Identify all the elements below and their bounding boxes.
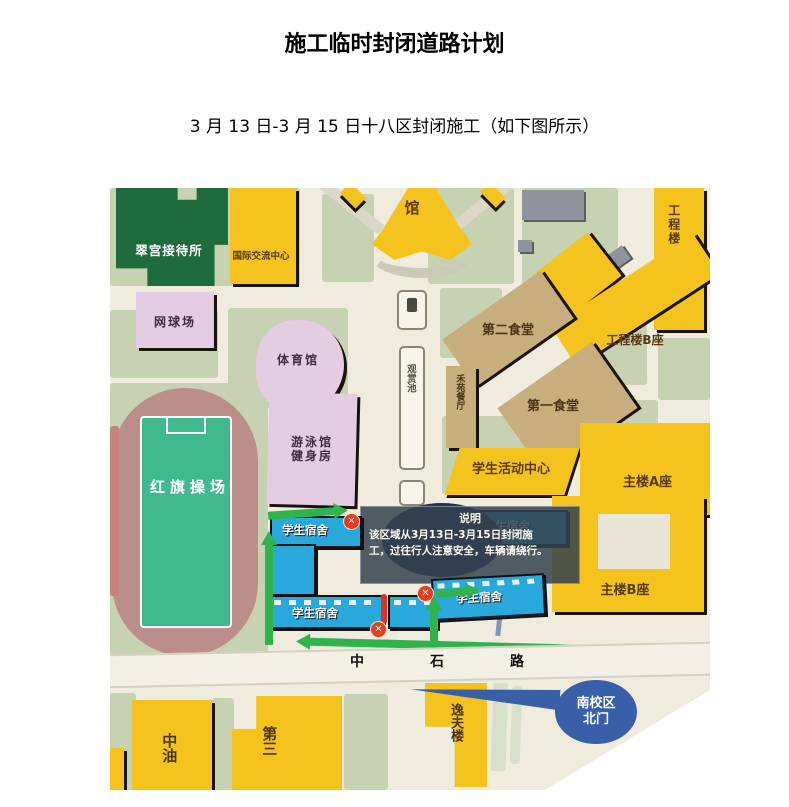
arrow-shaft xyxy=(430,610,438,646)
label-red-flag-playground: 红旗操场 xyxy=(130,479,250,496)
arrow-head xyxy=(261,531,277,545)
label-main-b: 主楼B座 xyxy=(565,584,685,599)
label-pool-gym: 游泳馆 健身房 xyxy=(268,436,356,464)
label-second-canteen: 第二食堂 xyxy=(453,324,563,339)
detour-arrow-up xyxy=(260,531,278,645)
soccer-field xyxy=(140,416,232,628)
label-yifu: 逸夫楼 xyxy=(447,703,462,787)
label-student-activity-center: 学生活动中心 xyxy=(450,463,572,478)
closure-x-icon: ✕ xyxy=(370,621,387,638)
building-intl-exchange-center xyxy=(230,188,296,284)
arrow-shaft xyxy=(436,587,467,598)
dorm-windows xyxy=(274,600,378,605)
statue-icon xyxy=(407,298,417,312)
label-engineering-b: 工程楼B座 xyxy=(580,334,690,348)
label-zhongyou: 中油 xyxy=(160,733,177,790)
label-pool-line2: 健身房 xyxy=(268,450,356,464)
detour-arrow-up xyxy=(425,596,443,646)
document-subtitle: 3 月 13 日-3 月 15 日十八区封闭施工（如下图所示） xyxy=(0,112,789,137)
label-ornamental-pond: 观赏池 xyxy=(404,364,415,452)
closure-notice-callout: 说明 该区域从3月13日-3月15日封闭施 工，过往行人注意安全，车辆请绕行。 xyxy=(360,506,580,584)
label-tennis-court: 网球场 xyxy=(136,316,214,330)
label-cuigong-reception: 翠宫接待所 xyxy=(116,244,222,258)
label-library-hall: 馆 xyxy=(392,200,432,217)
campus-map-image: 红旗操场 翠宫接待所 国际交流中心 馆 工程楼A座 工程楼B座 网球场 体育馆 … xyxy=(110,188,710,790)
label-intl-exchange-center: 国际交流中心 xyxy=(216,252,306,263)
label-zhongshi-road: 中石路 xyxy=(350,654,630,670)
building-sliver xyxy=(110,748,124,790)
arrow-shaft xyxy=(265,545,273,645)
callout-line2: 工，过往行人注意安全，车辆请绕行。 xyxy=(361,542,579,558)
stadium-stands xyxy=(110,426,119,596)
closure-x-icon: ✕ xyxy=(417,585,434,602)
main-b-courtyard xyxy=(598,514,670,569)
pond-box xyxy=(399,480,425,506)
arrow-head xyxy=(296,633,310,649)
goal-box-line xyxy=(166,418,206,434)
building-gray-block xyxy=(522,190,584,220)
label-gymnasium: 体育馆 xyxy=(256,354,340,368)
south-campus-north-gate-badge: 南校区 北门 xyxy=(555,680,637,744)
building-third xyxy=(232,696,342,790)
label-heyuan-restaurant: 禾苑餐厅 xyxy=(454,374,464,446)
label-main-a: 主楼A座 xyxy=(590,476,705,491)
lawn-patch xyxy=(344,694,388,790)
label-student-dorm: 学生宿舍 xyxy=(292,607,338,620)
label-student-dorm: 学生宿舍 xyxy=(282,524,328,537)
pond-statue-box xyxy=(397,290,427,330)
callout-title: 说明 xyxy=(361,510,579,526)
gate-label-line1: 南校区 xyxy=(576,696,615,712)
building-gray-block xyxy=(518,240,532,252)
arrow-shaft xyxy=(268,507,334,520)
label-third: 第三 xyxy=(260,726,277,786)
document-title: 施工临时封闭道路计划 xyxy=(0,26,789,58)
arrow-head xyxy=(465,582,480,599)
closed-road-bar xyxy=(381,594,387,624)
closure-x-icon: ✕ xyxy=(343,513,360,530)
gate-label-line2: 北门 xyxy=(583,712,609,728)
building-student-dorm: 学生宿舍 xyxy=(268,595,384,629)
lawn-patch xyxy=(212,698,234,790)
label-pool-line1: 游泳馆 xyxy=(268,436,356,450)
label-first-canteen: 第一食堂 xyxy=(498,400,608,415)
callout-line1: 该区域从3月13日-3月15日封闭施 xyxy=(361,526,579,542)
